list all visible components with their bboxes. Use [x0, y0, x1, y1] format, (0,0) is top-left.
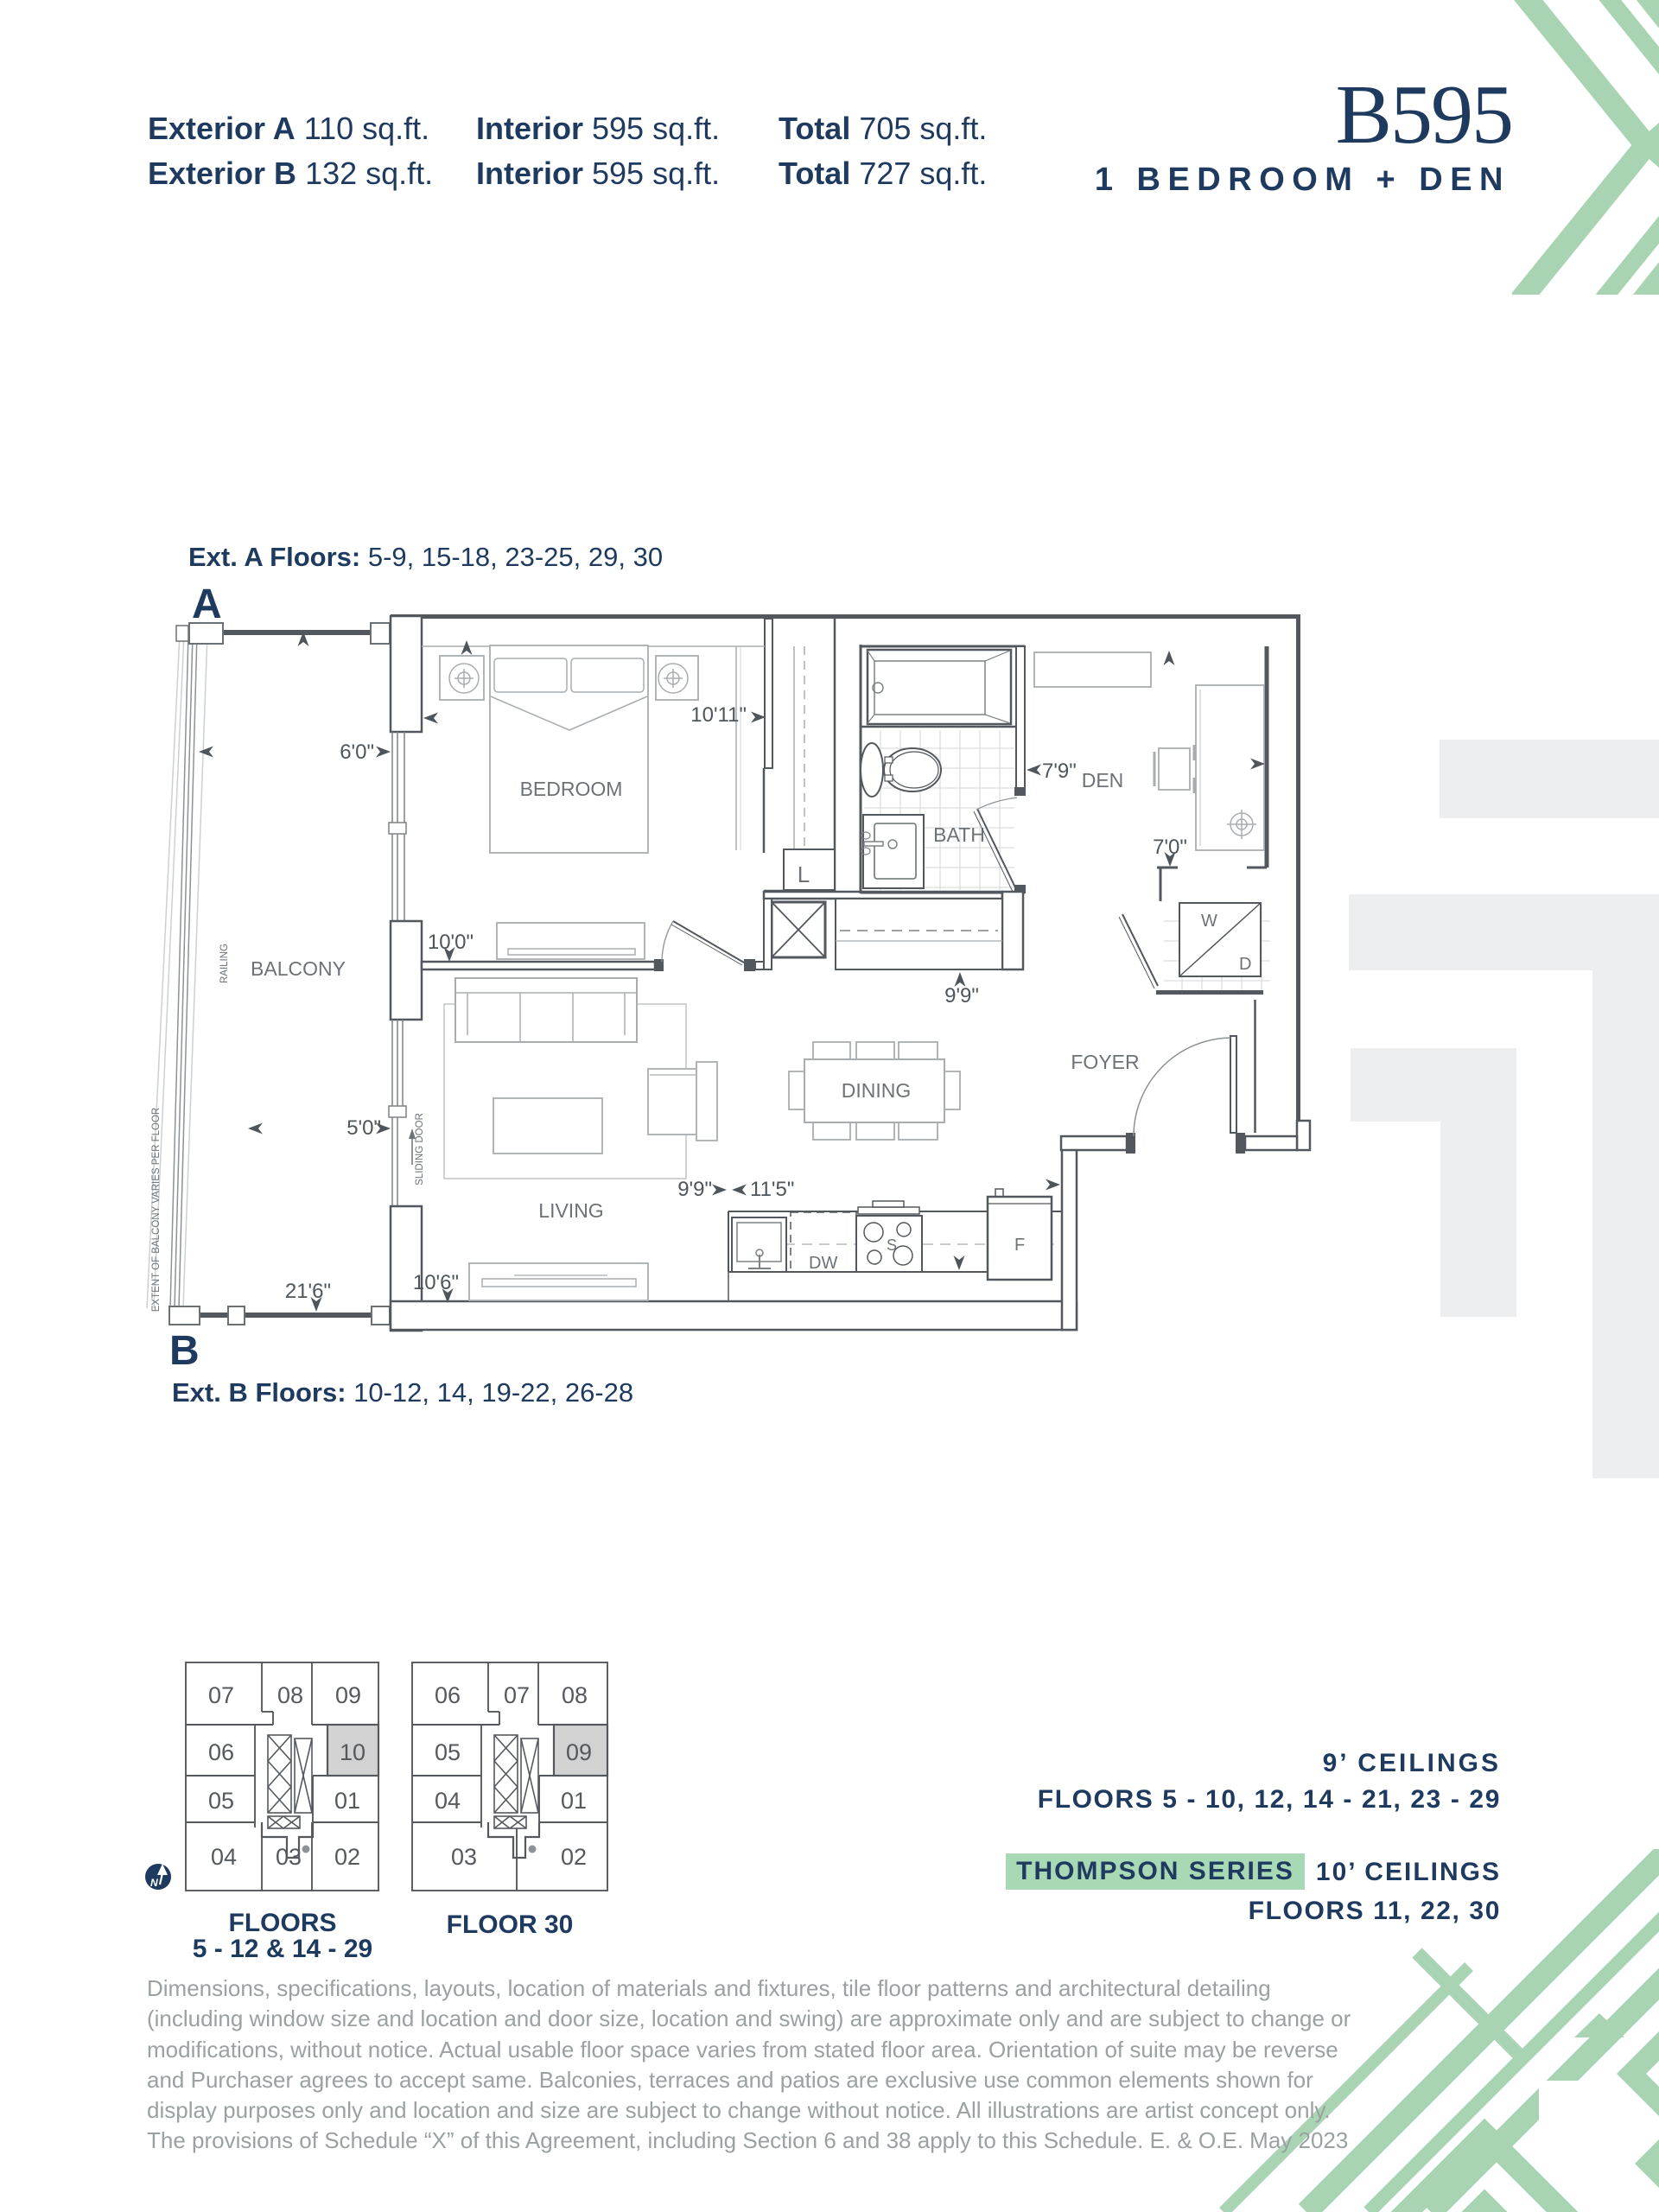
- svg-text:DW: DW: [809, 1254, 837, 1273]
- svg-text:05: 05: [208, 1788, 234, 1814]
- svg-text:10: 10: [340, 1739, 365, 1765]
- svg-text:10'11": 10'11": [690, 703, 747, 727]
- svg-text:11'5": 11'5": [750, 1178, 794, 1201]
- svg-text:6'0": 6'0": [340, 741, 374, 764]
- svg-text:BALCONY: BALCONY: [251, 957, 346, 980]
- svg-text:01: 01: [561, 1788, 587, 1814]
- svg-text:09: 09: [335, 1682, 361, 1708]
- svg-text:BEDROOM: BEDROOM: [520, 778, 623, 800]
- svg-text:06: 06: [208, 1739, 234, 1765]
- svg-text:N: N: [150, 1877, 158, 1889]
- svg-text:L: L: [798, 861, 810, 887]
- svg-text:7'9": 7'9": [1042, 760, 1077, 783]
- svg-text:03: 03: [276, 1844, 302, 1870]
- svg-text:06: 06: [435, 1682, 461, 1708]
- svg-text:DEN: DEN: [1082, 769, 1124, 791]
- svg-text:FOYER: FOYER: [1071, 1051, 1139, 1073]
- svg-text:9'9": 9'9": [944, 984, 979, 1007]
- svg-text:DINING: DINING: [842, 1079, 912, 1102]
- svg-text:EXTENT OF BALCONY VARIES PER F: EXTENT OF BALCONY VARIES PER FLOOR: [151, 1108, 162, 1312]
- svg-text:D: D: [1239, 955, 1251, 974]
- svg-text:05: 05: [435, 1739, 461, 1765]
- svg-text:SLIDING DOOR: SLIDING DOOR: [415, 1113, 425, 1185]
- svg-text:08: 08: [562, 1682, 588, 1708]
- svg-text:02: 02: [334, 1844, 360, 1870]
- svg-text:07: 07: [208, 1682, 234, 1708]
- svg-text:04: 04: [211, 1844, 237, 1870]
- svg-text:S: S: [887, 1236, 897, 1254]
- svg-text:21'6": 21'6": [285, 1280, 331, 1303]
- svg-text:5'0": 5'0": [346, 1116, 381, 1140]
- svg-text:03: 03: [451, 1844, 477, 1870]
- svg-text:7'0": 7'0": [1153, 836, 1187, 859]
- svg-text:08: 08: [277, 1682, 303, 1708]
- svg-text:02: 02: [561, 1844, 587, 1870]
- svg-text:LIVING: LIVING: [538, 1199, 603, 1222]
- svg-text:09: 09: [566, 1739, 592, 1765]
- svg-text:07: 07: [504, 1682, 530, 1708]
- svg-text:9'9": 9'9": [677, 1178, 712, 1201]
- svg-text:BATH: BATH: [933, 823, 985, 846]
- svg-text:RAILING: RAILING: [219, 944, 230, 983]
- svg-text:04: 04: [435, 1788, 461, 1814]
- svg-text:F: F: [1014, 1236, 1025, 1255]
- svg-text:W: W: [1201, 912, 1217, 931]
- svg-text:01: 01: [334, 1788, 360, 1814]
